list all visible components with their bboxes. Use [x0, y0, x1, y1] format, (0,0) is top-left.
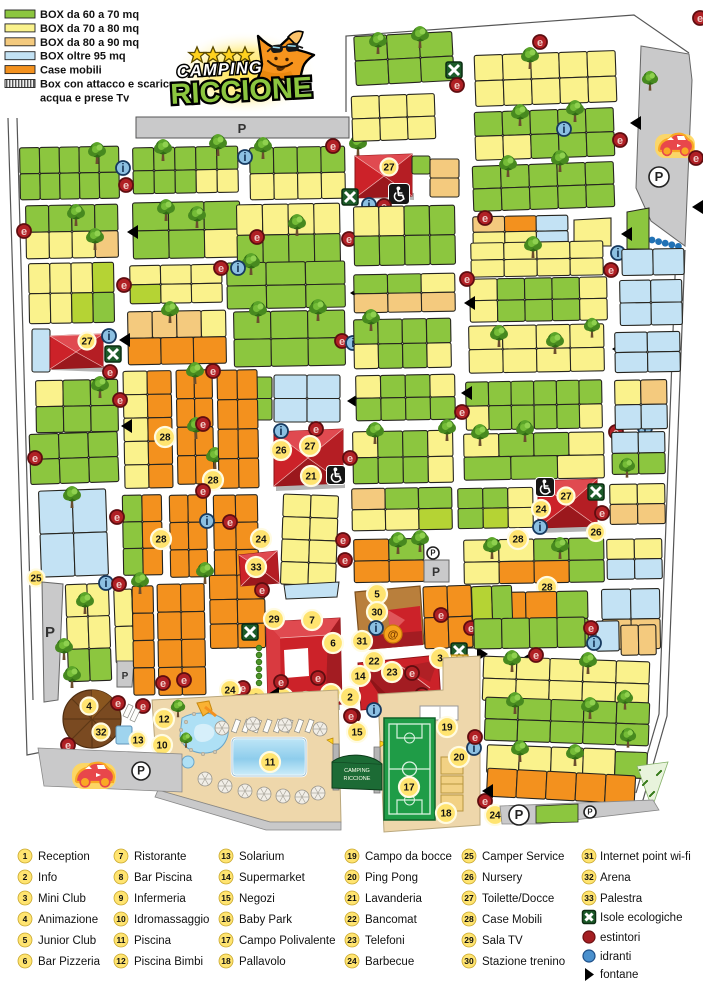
svg-text:Piscina: Piscina	[134, 935, 172, 947]
svg-text:25: 25	[30, 574, 42, 585]
svg-text:Reception: Reception	[38, 851, 90, 863]
svg-text:26: 26	[590, 528, 602, 539]
svg-text:Arena: Arena	[600, 872, 631, 884]
svg-text:13: 13	[221, 851, 231, 861]
svg-text:Ristorante: Ristorante	[134, 851, 186, 863]
svg-text:Campo da bocce: Campo da bocce	[365, 851, 452, 863]
svg-text:Box con attacco e scarico: Box con attacco e scarico	[40, 79, 176, 91]
svg-text:P: P	[432, 565, 440, 579]
svg-text:e: e	[117, 395, 123, 407]
svg-text:Stazione trenino: Stazione trenino	[482, 956, 565, 968]
svg-text:10: 10	[156, 741, 168, 752]
svg-text:Camper Service: Camper Service	[482, 851, 564, 863]
svg-text:e: e	[588, 623, 594, 635]
svg-text:e: e	[200, 486, 206, 498]
svg-text:i: i	[243, 152, 246, 164]
svg-text:Piscina Bimbi: Piscina Bimbi	[134, 956, 203, 968]
svg-text:10: 10	[116, 914, 126, 924]
svg-text:Internet point wi-fi: Internet point wi-fi	[600, 851, 691, 863]
svg-text:i: i	[374, 623, 377, 635]
svg-text:e: e	[342, 555, 348, 567]
svg-text:5: 5	[23, 935, 28, 945]
svg-text:17: 17	[403, 783, 415, 794]
svg-text:26: 26	[464, 872, 474, 882]
svg-text:15: 15	[351, 728, 363, 739]
svg-text:e: e	[121, 280, 127, 292]
svg-text:7: 7	[309, 616, 315, 627]
svg-text:Nursery: Nursery	[482, 872, 523, 884]
svg-text:i: i	[372, 705, 375, 717]
svg-text:e: e	[454, 80, 460, 92]
svg-text:7: 7	[119, 851, 124, 861]
svg-text:17: 17	[221, 935, 231, 945]
svg-text:27: 27	[560, 492, 572, 503]
svg-text:e: e	[21, 226, 27, 238]
svg-text:Case Mobili: Case Mobili	[482, 914, 542, 926]
svg-text:27: 27	[81, 337, 93, 348]
svg-text:33: 33	[250, 563, 262, 574]
svg-text:28: 28	[464, 914, 474, 924]
svg-text:Supermarket: Supermarket	[239, 872, 306, 884]
svg-text:5: 5	[374, 590, 380, 601]
svg-text:P: P	[122, 671, 129, 682]
svg-text:28: 28	[159, 433, 171, 444]
svg-text:2: 2	[23, 872, 28, 882]
svg-text:i: i	[562, 124, 565, 136]
svg-text:estintori: estintori	[600, 932, 640, 944]
svg-text:31: 31	[356, 637, 368, 648]
svg-text:e: e	[608, 265, 614, 277]
svg-text:e: e	[693, 153, 699, 165]
svg-text:e: e	[107, 367, 113, 379]
svg-text:Isole ecologiche: Isole ecologiche	[600, 912, 682, 924]
svg-text:e: e	[438, 610, 444, 622]
svg-text:2: 2	[347, 693, 353, 704]
svg-text:Bar Pizzeria: Bar Pizzeria	[38, 956, 101, 968]
svg-text:e: e	[468, 623, 474, 635]
svg-text:e: e	[181, 675, 187, 687]
svg-text:23: 23	[386, 668, 398, 679]
svg-text:Info: Info	[38, 872, 57, 884]
svg-text:28: 28	[155, 535, 167, 546]
svg-text:Lavanderia: Lavanderia	[365, 893, 423, 905]
svg-text:e: e	[409, 668, 415, 680]
svg-text:Baby Park: Baby Park	[239, 914, 292, 926]
svg-text:P: P	[45, 624, 55, 641]
svg-text:8: 8	[119, 872, 124, 882]
svg-text:Pallavolo: Pallavolo	[239, 956, 286, 968]
svg-text:e: e	[210, 366, 216, 378]
svg-text:Idromassaggio: Idromassaggio	[134, 914, 209, 926]
svg-text:16: 16	[221, 914, 231, 924]
svg-text:Palestra: Palestra	[600, 893, 643, 905]
svg-text:26: 26	[275, 446, 287, 457]
svg-text:BOX oltre 95 mq: BOX oltre 95 mq	[40, 51, 126, 63]
svg-text:e: e	[259, 585, 265, 597]
svg-text:15: 15	[221, 893, 231, 903]
svg-text:fontane: fontane	[600, 969, 638, 981]
svg-text:P: P	[238, 121, 247, 136]
svg-text:i: i	[104, 578, 107, 590]
svg-text:30: 30	[371, 608, 383, 619]
svg-text:e: e	[347, 453, 353, 465]
svg-text:e: e	[227, 517, 233, 529]
svg-text:idranti: idranti	[600, 951, 631, 963]
svg-text:e: e	[123, 180, 129, 192]
svg-text:e: e	[464, 274, 470, 286]
svg-text:P: P	[430, 548, 435, 557]
svg-text:30: 30	[464, 956, 474, 966]
svg-text:Junior Club: Junior Club	[38, 935, 96, 947]
svg-text:CAMPING: CAMPING	[344, 768, 370, 774]
svg-text:e: e	[315, 673, 321, 685]
svg-text:e: e	[459, 407, 465, 419]
svg-text:i: i	[205, 516, 208, 528]
svg-text:18: 18	[221, 956, 231, 966]
svg-text:e: e	[348, 711, 354, 723]
svg-text:e: e	[339, 336, 345, 348]
svg-text:Negozi: Negozi	[239, 893, 275, 905]
svg-text:25: 25	[464, 851, 474, 861]
svg-text:32: 32	[95, 728, 107, 739]
svg-text:14: 14	[221, 872, 231, 882]
svg-text:e: e	[115, 698, 121, 710]
svg-text:e: e	[114, 512, 120, 524]
svg-text:33: 33	[584, 893, 594, 903]
svg-text:Sala TV: Sala TV	[482, 935, 523, 947]
svg-text:Infermeria: Infermeria	[134, 893, 186, 905]
svg-text:3: 3	[437, 654, 443, 665]
svg-text:18: 18	[440, 809, 452, 820]
svg-text:31: 31	[584, 851, 594, 861]
svg-text:RICCIONE: RICCIONE	[344, 776, 371, 782]
svg-text:e: e	[313, 424, 319, 436]
svg-text:i: i	[107, 331, 110, 343]
svg-text:4: 4	[86, 702, 92, 713]
svg-text:Bar Piscina: Bar Piscina	[134, 872, 193, 884]
svg-text:e: e	[218, 263, 224, 275]
svg-text:Campo Polivalente: Campo Polivalente	[239, 935, 336, 947]
svg-text:22: 22	[347, 914, 357, 924]
svg-text:e: e	[472, 732, 478, 744]
svg-text:21: 21	[305, 472, 317, 483]
svg-text:27: 27	[383, 163, 395, 174]
svg-text:i: i	[592, 638, 595, 650]
svg-text:6: 6	[330, 639, 336, 650]
svg-text:i: i	[279, 426, 282, 438]
svg-text:e: e	[340, 535, 346, 547]
svg-text:Barbecue: Barbecue	[365, 956, 414, 968]
svg-text:27: 27	[464, 893, 474, 903]
svg-text:@: @	[388, 629, 399, 641]
svg-text:32: 32	[584, 872, 594, 882]
svg-text:24: 24	[255, 535, 267, 546]
svg-text:e: e	[482, 796, 488, 808]
svg-text:Mini Club: Mini Club	[38, 893, 86, 905]
svg-text:Animazione: Animazione	[38, 914, 98, 926]
svg-text:20: 20	[347, 872, 357, 882]
svg-text:BOX da 80 a 90 mq: BOX da 80 a 90 mq	[40, 37, 139, 49]
svg-text:22: 22	[368, 657, 380, 668]
svg-text:e: e	[617, 135, 623, 147]
svg-text:Case mobili: Case mobili	[40, 65, 102, 77]
svg-text:28: 28	[512, 535, 524, 546]
svg-text:i: i	[616, 248, 619, 260]
svg-text:i: i	[538, 522, 541, 534]
svg-text:27: 27	[304, 442, 316, 453]
svg-text:BOX da 70 a 80 mq: BOX da 70 a 80 mq	[40, 23, 139, 35]
svg-text:24: 24	[489, 811, 501, 822]
svg-text:24: 24	[535, 505, 547, 516]
svg-text:acqua e prese Tv: acqua e prese Tv	[40, 93, 130, 105]
svg-text:P: P	[515, 807, 524, 822]
svg-text:12: 12	[158, 715, 170, 726]
svg-text:P: P	[587, 807, 592, 816]
svg-text:e: e	[278, 677, 284, 689]
svg-text:3: 3	[23, 893, 28, 903]
svg-text:e: e	[346, 234, 352, 246]
svg-text:1: 1	[23, 851, 28, 861]
svg-text:P: P	[137, 764, 145, 777]
svg-text:e: e	[254, 232, 260, 244]
svg-text:19: 19	[441, 723, 453, 734]
svg-text:e: e	[537, 37, 543, 49]
svg-text:e: e	[697, 13, 703, 25]
svg-text:19: 19	[347, 851, 357, 861]
svg-text:9: 9	[119, 893, 124, 903]
svg-text:BOX da 60 a 70 mq: BOX da 60 a 70 mq	[40, 9, 139, 21]
svg-text:11: 11	[265, 758, 276, 769]
svg-text:Toilette/Docce: Toilette/Docce	[482, 893, 554, 905]
svg-text:6: 6	[23, 956, 28, 966]
svg-text:24: 24	[347, 956, 357, 966]
svg-text:e: e	[482, 213, 488, 225]
svg-text:e: e	[200, 419, 206, 431]
svg-text:13: 13	[132, 736, 144, 747]
svg-text:i: i	[236, 263, 239, 275]
svg-text:11: 11	[117, 935, 126, 945]
svg-text:e: e	[599, 508, 605, 520]
svg-text:e: e	[330, 141, 336, 153]
svg-text:28: 28	[207, 476, 219, 487]
svg-text:e: e	[32, 453, 38, 465]
svg-text:e: e	[116, 579, 122, 591]
svg-text:Bancomat: Bancomat	[365, 914, 418, 926]
svg-text:23: 23	[347, 935, 357, 945]
svg-text:e: e	[140, 701, 146, 713]
svg-text:Solarium: Solarium	[239, 851, 284, 863]
svg-text:i: i	[121, 163, 124, 175]
svg-text:4: 4	[23, 914, 28, 924]
svg-text:20: 20	[453, 753, 465, 764]
svg-text:14: 14	[354, 672, 366, 683]
svg-text:e: e	[533, 650, 539, 662]
svg-text:29: 29	[464, 935, 474, 945]
svg-text:Ping Pong: Ping Pong	[365, 872, 418, 884]
svg-text:e: e	[160, 678, 166, 690]
svg-text:12: 12	[116, 956, 126, 966]
svg-text:Telefoni: Telefoni	[365, 935, 405, 947]
svg-text:21: 21	[347, 893, 357, 903]
svg-text:P: P	[655, 169, 664, 184]
svg-text:29: 29	[268, 615, 280, 626]
